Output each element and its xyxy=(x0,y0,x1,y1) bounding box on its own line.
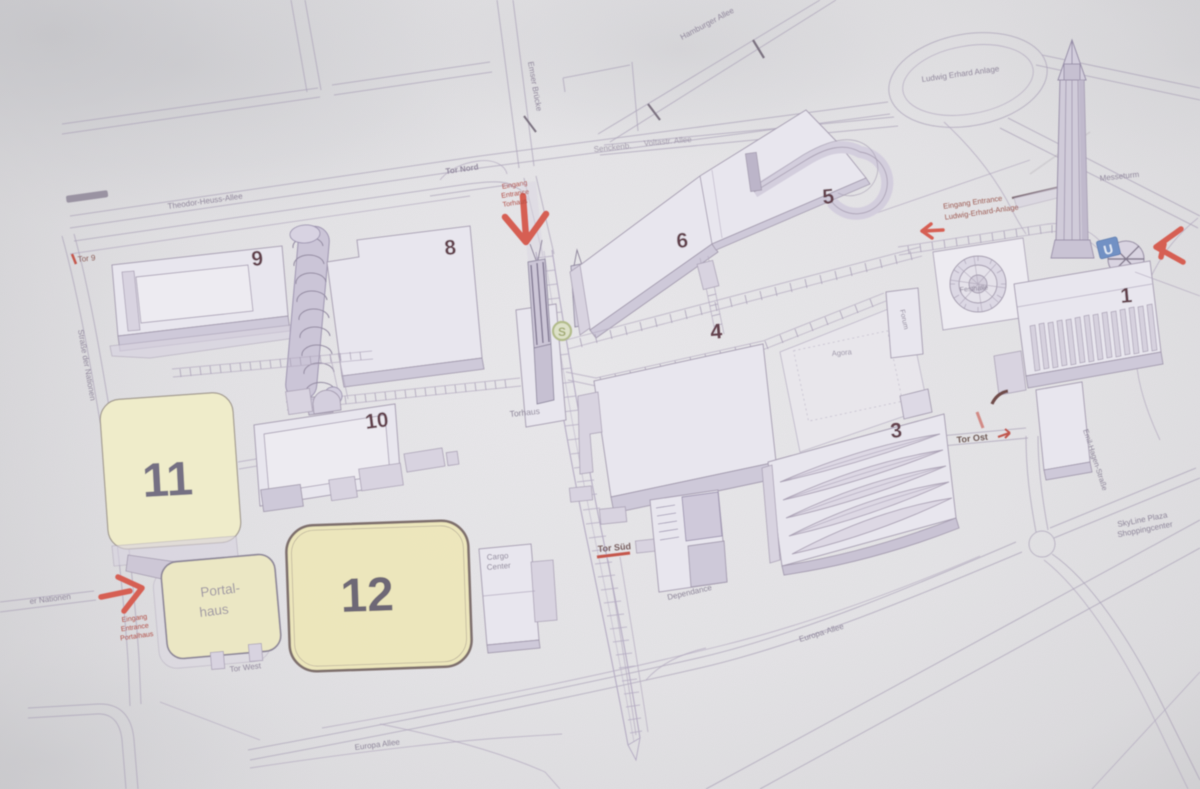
svg-text:9: 9 xyxy=(250,247,264,271)
svg-text:12: 12 xyxy=(340,568,395,623)
svg-text:1: 1 xyxy=(1119,284,1133,308)
svg-text:4: 4 xyxy=(709,320,723,344)
svg-text:8: 8 xyxy=(443,236,457,260)
svg-text:Tor 9: Tor 9 xyxy=(77,253,96,264)
svg-text:Agora: Agora xyxy=(831,347,853,358)
svg-text:3: 3 xyxy=(889,419,903,443)
svg-text:6: 6 xyxy=(675,229,689,253)
svg-text:5: 5 xyxy=(821,185,835,209)
svg-text:10: 10 xyxy=(364,408,390,434)
svg-text:11: 11 xyxy=(141,452,194,508)
svg-text:S: S xyxy=(558,325,566,339)
